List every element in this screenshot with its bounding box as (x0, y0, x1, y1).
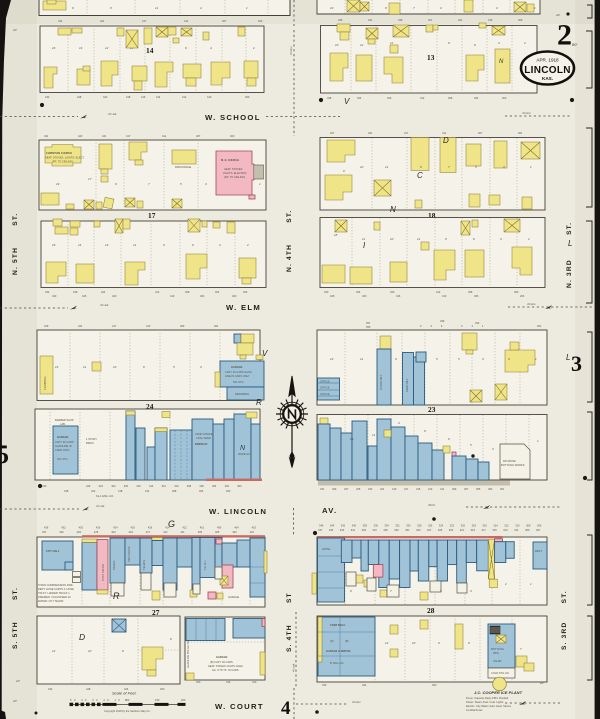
svg-text:408: 408 (172, 489, 177, 493)
svg-text:V: V (262, 349, 268, 358)
svg-text:313: 313 (428, 487, 433, 491)
svg-text:342: 342 (341, 524, 346, 528)
svg-text:(B): (B) (345, 639, 349, 643)
svg-text:324: 324 (439, 524, 444, 528)
svg-text:12: 12 (360, 43, 364, 47)
svg-text:436: 436 (44, 526, 49, 530)
svg-text:PARSONAGE: PARSONAGE (175, 165, 192, 169)
svg-text:3: 3 (571, 351, 582, 376)
svg-text:327: 327 (428, 18, 433, 22)
svg-text:420: 420 (131, 526, 136, 530)
svg-text:11: 11 (417, 237, 420, 241)
svg-text:404: 404 (234, 526, 239, 530)
svg-text:337: 337 (373, 528, 378, 532)
svg-text:2: 2 (527, 237, 530, 241)
svg-text:GARAGE: GARAGE (228, 595, 239, 599)
svg-text:311: 311 (440, 487, 445, 491)
svg-text:317: 317 (404, 131, 409, 135)
svg-text:416: 416 (141, 95, 146, 99)
svg-text:G: G (168, 519, 175, 529)
svg-text:12: 12 (105, 46, 109, 50)
svg-text:409: 409 (198, 530, 203, 534)
svg-text:17: 17 (88, 177, 92, 181)
svg-text:322: 322 (450, 524, 455, 528)
svg-text:418: 418 (148, 526, 153, 530)
svg-text:4'conc.: 4'conc. (289, 45, 293, 55)
svg-text:402: 402 (252, 526, 257, 530)
svg-text:428: 428 (77, 95, 82, 99)
svg-text:GARAGE & SMITHS: GARAGE & SMITHS (326, 649, 351, 653)
svg-text:306: 306 (537, 524, 542, 528)
svg-text:CAPY 20 CARS: CAPY 20 CARS (55, 440, 74, 444)
svg-text:312: 312 (420, 96, 425, 100)
svg-text:11: 11 (372, 433, 375, 437)
svg-text:412: 412 (182, 526, 187, 530)
svg-text:10': 10' (16, 679, 20, 683)
svg-text:RED CROSS: RED CROSS (127, 546, 131, 562)
svg-text:316: 316 (483, 524, 488, 528)
svg-text:324: 324 (362, 683, 367, 687)
svg-text:321: 321 (380, 487, 385, 491)
svg-text:BRICK: BRICK (86, 441, 94, 445)
svg-text:12: 12 (385, 641, 389, 645)
svg-text:333: 333 (394, 528, 399, 532)
svg-text:315: 315 (488, 18, 493, 22)
svg-text:S. 5TH ST.: S. 5TH ST. (12, 587, 19, 649)
svg-text:TELEPH.: TELEPH. (142, 559, 146, 570)
svg-text:HOTEL: HOTEL (322, 547, 331, 551)
svg-text:10: 10 (88, 649, 92, 653)
svg-text:DRUGS: DRUGS (112, 560, 116, 570)
svg-text:320: 320 (461, 524, 466, 528)
svg-text:313: 313 (503, 528, 508, 532)
svg-text:432: 432 (45, 290, 50, 294)
svg-text:AV.: AV. (555, 13, 561, 17)
svg-text:305: 305 (476, 487, 481, 491)
svg-text:BARBER SHOP: BARBER SHOP (55, 418, 74, 422)
svg-text:315: 315 (416, 487, 421, 491)
svg-text:400: 400 (232, 294, 237, 298)
svg-text:407: 407 (222, 19, 227, 23)
svg-text:414: 414 (145, 489, 150, 493)
svg-text:319: 319 (471, 528, 476, 532)
svg-text:426: 426 (96, 526, 101, 530)
svg-text:LINCOLN: LINCOLN (524, 65, 571, 76)
svg-text:FLOUR MILL: FLOUR MILL (379, 374, 383, 390)
svg-text:341: 341 (351, 528, 356, 532)
svg-text:14: 14 (79, 46, 83, 50)
svg-text:416: 416 (136, 484, 141, 488)
svg-text:CHRISTIAN CHURCH: CHRISTIAN CHURCH (46, 151, 72, 155)
svg-text:327: 327 (427, 528, 432, 532)
svg-text:4'conc.: 4'conc. (522, 111, 532, 115)
svg-text:429: 429 (44, 324, 49, 328)
svg-text:315: 315 (492, 528, 497, 532)
svg-text:401: 401 (250, 530, 255, 534)
svg-text:4'c.wk.: 4'c.wk. (292, 663, 296, 672)
svg-text:430: 430 (52, 294, 57, 298)
svg-text:WATER: CITY MAINS: WATER: CITY MAINS (38, 599, 64, 603)
svg-text:16: 16 (52, 46, 56, 50)
svg-text:S. 3RD ST.: S. 3RD ST. (561, 590, 568, 650)
svg-text:331: 331 (320, 487, 325, 491)
svg-text:R: R (256, 398, 262, 407)
svg-text:341: 341 (368, 18, 373, 22)
svg-text:L: L (566, 353, 570, 362)
svg-text:406: 406 (217, 526, 222, 530)
svg-text:N. 4TH ST.: N. 4TH ST. (286, 210, 293, 272)
svg-text:310: 310 (442, 294, 447, 298)
svg-text:420: 420 (112, 294, 117, 298)
svg-text:19: 19 (52, 243, 56, 247)
svg-text:413: 413 (163, 530, 168, 534)
svg-text:300: 300 (502, 96, 507, 100)
svg-text:4'conc.: 4'conc. (527, 302, 537, 306)
svg-text:316: 316 (226, 680, 231, 684)
svg-text:10: 10 (360, 165, 364, 169)
svg-text:NO H'TG: NO H'TG (57, 457, 68, 461)
svg-text:430: 430 (42, 484, 47, 488)
svg-text:409: 409 (180, 324, 185, 328)
svg-text:301: 301 (500, 487, 505, 491)
svg-text:408: 408 (185, 290, 190, 294)
svg-text:333: 333 (475, 321, 480, 325)
svg-text:428: 428 (73, 290, 78, 294)
svg-text:N: N (499, 59, 504, 65)
svg-text:424: 424 (101, 290, 106, 294)
svg-text:14: 14 (78, 243, 82, 247)
svg-text:357: 357 (366, 321, 371, 325)
svg-text:404: 404 (212, 484, 217, 488)
svg-text:420: 420 (124, 484, 129, 488)
svg-text:422: 422 (91, 489, 96, 493)
svg-text:437: 437 (42, 530, 47, 534)
svg-text:413: 413 (146, 324, 151, 328)
svg-text:GARAGE: GARAGE (216, 655, 228, 659)
svg-text:5: 5 (0, 440, 9, 469)
svg-text:424: 424 (113, 526, 118, 530)
svg-text:OFFICE: OFFICE (320, 380, 330, 384)
svg-text:432: 432 (48, 687, 53, 691)
svg-text:PLUMBING: PLUMBING (43, 376, 47, 390)
svg-text:431: 431 (58, 19, 63, 23)
svg-text:428: 428 (86, 687, 91, 691)
svg-text:417: 417 (112, 324, 117, 328)
svg-text:OFFICE: OFFICE (320, 386, 330, 390)
svg-text:414: 414 (156, 95, 161, 99)
svg-text:LIGHTS: ELECTRIC: LIGHTS: ELECTRIC (223, 171, 247, 175)
svg-text:330: 330 (406, 524, 411, 528)
svg-text:414: 414 (149, 484, 154, 488)
svg-text:407: 407 (196, 134, 201, 138)
svg-text:320: 320 (390, 290, 395, 294)
svg-text:2: 2 (504, 582, 507, 586)
svg-text:421: 421 (102, 134, 107, 138)
svg-text:23: 23 (428, 405, 436, 414)
svg-text:4'c.wk.: 4'c.wk. (108, 112, 117, 116)
svg-text:10: 10 (330, 6, 334, 10)
svg-text:304: 304 (474, 96, 479, 100)
svg-text:(FR. TO CEILING): (FR. TO CEILING) (224, 175, 245, 179)
svg-text:FIREMEN: VOLUNTEER 20: FIREMEN: VOLUNTEER 20 (38, 595, 71, 599)
svg-text:418: 418 (118, 489, 123, 493)
svg-text:433: 433 (59, 530, 64, 534)
svg-text:11: 11 (360, 357, 363, 361)
svg-text:LAB.: LAB. (60, 422, 66, 426)
svg-text:303: 303 (488, 487, 493, 491)
svg-text:80': 80' (572, 42, 577, 47)
svg-text:18: 18 (334, 233, 338, 237)
svg-text:425: 425 (94, 530, 99, 534)
svg-text:GASOLINE 550 GA.T.K: GASOLINE 550 GA.T.K (186, 640, 190, 668)
svg-text:343: 343 (340, 528, 345, 532)
svg-text:HEAT: STOVES. LIGHTS: ELECT.: HEAT: STOVES. LIGHTS: ELECT. (45, 156, 85, 160)
svg-text:2: 2 (252, 46, 255, 50)
svg-text:Pump. Capacity Daily 4 Bbl. Fl: Pump. Capacity Daily 4 Bbl. Flooded (466, 696, 509, 700)
svg-text:REPAIRING: REPAIRING (235, 392, 249, 396)
svg-text:345: 345 (329, 528, 334, 532)
svg-text:400: 400 (160, 687, 165, 691)
svg-text:323: 323 (449, 528, 454, 532)
svg-text:432: 432 (61, 526, 66, 530)
svg-text:M. E. CHURCH: M. E. CHURCH (221, 158, 239, 162)
svg-text:431: 431 (44, 134, 49, 138)
svg-text:Scale of Feet.: Scale of Feet. (112, 691, 137, 696)
svg-text:4'c.wk.: 4'c.wk. (100, 303, 109, 307)
svg-text:11: 11 (133, 243, 136, 247)
svg-text:428: 428 (64, 489, 69, 493)
svg-text:14: 14 (146, 46, 154, 55)
svg-text:411: 411 (184, 19, 189, 23)
svg-text:10: 10 (113, 365, 117, 369)
svg-text:4: 4 (281, 698, 291, 719)
svg-text:330: 330 (322, 683, 327, 687)
svg-text:12: 12 (52, 649, 56, 653)
svg-text:410: 410 (174, 484, 179, 488)
svg-text:312: 312 (504, 524, 509, 528)
svg-text:J.C. COOPER ICE PLANT: J.C. COOPER ICE PLANT (474, 690, 523, 695)
svg-text:332: 332 (395, 524, 400, 528)
svg-text:429: 429 (77, 530, 82, 534)
svg-text:307: 307 (536, 528, 541, 532)
svg-text:310: 310 (515, 524, 520, 528)
svg-text:335: 335 (383, 528, 388, 532)
svg-text:314: 314 (493, 524, 498, 528)
svg-text:N: N (390, 205, 396, 214)
svg-text:W. COURT: W. COURT (215, 702, 264, 711)
svg-text:50 40 30 20 10 0: 50 40 30 20 10 0 (70, 698, 129, 702)
svg-text:Copyright 1918 by the Sanborn: Copyright 1918 by the Sanborn Map Co. (104, 709, 151, 713)
svg-text:309: 309 (452, 487, 457, 491)
svg-text:11: 11 (390, 41, 393, 45)
svg-text:GARAGE: GARAGE (231, 365, 243, 369)
svg-text:410: 410 (170, 294, 175, 298)
svg-text:323: 323 (368, 487, 373, 491)
svg-text:S. 4TH ST: S. 4TH ST (286, 592, 293, 652)
svg-text:336: 336 (374, 524, 379, 528)
svg-text:406: 406 (199, 484, 204, 488)
svg-text:310: 310 (252, 680, 257, 684)
svg-text:311: 311 (514, 528, 519, 532)
svg-text:2: 2 (523, 41, 526, 45)
svg-text:321: 321 (458, 18, 463, 22)
svg-text:327: 327 (330, 131, 335, 135)
svg-text:5 & 10 c: 5 & 10 c (203, 560, 207, 570)
svg-text:ICE MF: ICE MF (493, 659, 502, 663)
svg-text:(FR. TO CEILING): (FR. TO CEILING) (52, 160, 73, 164)
svg-text:WARE HO.: WARE HO. (238, 452, 251, 456)
svg-text:RIO BONE: RIO BONE (503, 459, 516, 463)
svg-text:Power: Steam Fuel: Coal. Light: Power: Steam Fuel: Coal. Lights: (466, 700, 504, 704)
svg-text:10: 10 (412, 641, 416, 645)
svg-text:320: 320 (196, 680, 201, 684)
svg-text:(D): (D) (330, 639, 334, 643)
svg-text:4'conc.: 4'conc. (352, 700, 362, 704)
svg-text:347: 347 (318, 528, 323, 532)
svg-text:340: 340 (352, 524, 357, 528)
svg-text:426: 426 (86, 484, 91, 488)
svg-text:R: R (113, 591, 120, 601)
svg-text:OFFICE: OFFICE (320, 392, 330, 396)
svg-text:319: 319 (392, 487, 397, 491)
svg-text:D: D (443, 136, 449, 145)
svg-text:10': 10' (13, 28, 17, 32)
svg-text:COAL SHED: COAL SHED (196, 436, 211, 440)
svg-text:318: 318 (472, 524, 477, 528)
svg-text:Electric. City Water Used. Hea: Electric. City Water Used. Heat: Stoves (466, 704, 512, 708)
svg-text:308: 308 (526, 524, 531, 528)
svg-text:POST OFFICE: POST OFFICE (101, 563, 105, 581)
svg-text:344: 344 (330, 524, 335, 528)
svg-text:317: 317 (404, 487, 409, 491)
svg-text:11: 11 (83, 365, 86, 369)
svg-text:430: 430 (79, 526, 84, 530)
svg-text:GASOLINE IN: GASOLINE IN (55, 444, 72, 448)
svg-text:400: 400 (237, 484, 242, 488)
svg-text:423: 423 (111, 530, 116, 534)
svg-text:400: 400 (243, 290, 248, 294)
svg-text:324: 324 (356, 290, 361, 294)
svg-text:DEPT. HOSE CARTS 2: HOSE: DEPT. HOSE CARTS 2: HOSE (38, 587, 74, 591)
svg-text:346: 346 (319, 524, 324, 528)
svg-text:W. ELM: W. ELM (226, 303, 261, 312)
svg-text:FEED MILL: FEED MILL (405, 378, 409, 392)
svg-text:2: 2 (557, 19, 572, 52)
svg-text:330: 330 (324, 290, 329, 294)
svg-text:GA. 9 TK TK. IN CARS: GA. 9 TK TK. IN CARS (212, 668, 239, 672)
svg-text:349 341: 349 341 (420, 324, 492, 328)
svg-text:WKS: WKS (493, 651, 499, 655)
svg-text:320: 320 (362, 294, 367, 298)
svg-text:423: 423 (78, 134, 83, 138)
svg-text:417: 417 (126, 134, 131, 138)
svg-text:10': 10' (540, 681, 544, 685)
svg-text:311: 311 (442, 131, 447, 135)
svg-text:404: 404 (215, 290, 220, 294)
svg-text:321: 321 (368, 131, 373, 135)
svg-text:403: 403 (232, 530, 237, 534)
svg-text:405: 405 (215, 530, 220, 534)
svg-text:W. LINCOLN: W. LINCOLN (209, 507, 267, 516)
svg-text:307: 307 (464, 487, 469, 491)
svg-text:10': 10' (13, 699, 17, 703)
svg-text:N. 3RD ST.: N. 3RD ST. (566, 222, 573, 288)
svg-text:B. MILL HO.: B. MILL HO. (330, 661, 344, 665)
svg-text:306: 306 (474, 294, 479, 298)
svg-text:411: 411 (162, 134, 167, 138)
svg-text:308: 308 (448, 96, 453, 100)
svg-text:4'br'k.: 4'br'k. (428, 503, 436, 507)
svg-text:309: 309 (525, 528, 530, 532)
svg-text:W. SCHOOL: W. SCHOOL (205, 113, 261, 122)
svg-text:411: 411 (180, 530, 185, 534)
svg-text:328: 328 (417, 524, 422, 528)
svg-text:408: 408 (187, 484, 192, 488)
svg-text:404: 404 (199, 489, 204, 493)
svg-text:410: 410 (207, 95, 212, 99)
svg-text:316: 316 (396, 294, 401, 298)
svg-text:GARAGE: GARAGE (57, 435, 69, 439)
svg-text:339: 339 (440, 319, 445, 323)
svg-text:328: 328 (327, 96, 332, 100)
svg-text:329: 329 (332, 487, 337, 491)
svg-text:10: 10 (335, 43, 339, 47)
svg-text:309: 309 (518, 18, 523, 22)
svg-text:4'c.wk.: 4'c.wk. (96, 504, 105, 508)
svg-text:NO H'TG: NO H'TG (233, 380, 244, 384)
svg-text:HEAT: STEAM LIGHTS: ELEC: HEAT: STEAM LIGHTS: ELEC (208, 664, 243, 668)
svg-text:339: 339 (362, 528, 367, 532)
svg-text:Co.Watchman.: Co.Watchman. (466, 708, 483, 712)
svg-text:100: 100 (125, 698, 130, 702)
svg-text:402: 402 (225, 484, 230, 488)
svg-text:(B) CAPY 30 CARS: (B) CAPY 30 CARS (210, 660, 233, 664)
svg-text:LINE IN CARS ONLY: LINE IN CARS ONLY (225, 374, 250, 378)
svg-text:307: 307 (478, 131, 483, 135)
svg-text:TOWN COMPRESSION FIRE: TOWN COMPRESSION FIRE (38, 583, 73, 587)
svg-text:11: 11 (155, 6, 158, 10)
svg-text:BOTTLING WORKS: BOTTLING WORKS (501, 463, 525, 467)
svg-text:204: 204 (520, 294, 525, 298)
svg-text:13: 13 (427, 53, 435, 62)
svg-text:APR. 1918: APR. 1918 (536, 58, 559, 63)
svg-text:N. 5TH ST.: N. 5TH ST. (12, 213, 19, 275)
svg-text:335: 335 (398, 18, 403, 22)
svg-text:REST: REST (535, 549, 542, 553)
svg-text:422: 422 (111, 484, 116, 488)
svg-text:200: 200 (181, 698, 186, 702)
svg-text:L: L (568, 239, 572, 248)
svg-text:345: 345 (338, 18, 343, 22)
svg-text:750 FT. LADDER TRUCK 1: 750 FT. LADDER TRUCK 1 (38, 591, 70, 595)
svg-text:13: 13 (330, 357, 334, 361)
svg-text:D: D (79, 632, 85, 642)
svg-text:324: 324 (357, 96, 362, 100)
svg-text:403: 403 (230, 134, 235, 138)
svg-text:300: 300 (432, 683, 437, 687)
svg-text:334: 334 (384, 524, 389, 528)
svg-text:417: 417 (142, 19, 147, 23)
svg-text:426: 426 (82, 294, 87, 298)
svg-text:325: 325 (438, 528, 443, 532)
svg-text:312: 312 (436, 290, 441, 294)
svg-text:421: 421 (78, 324, 83, 328)
svg-text:320: 320 (387, 96, 392, 100)
svg-text:11: 11 (385, 165, 388, 169)
svg-text:338: 338 (363, 524, 368, 528)
svg-text:418: 418 (126, 95, 131, 99)
svg-text:328: 328 (330, 294, 335, 298)
